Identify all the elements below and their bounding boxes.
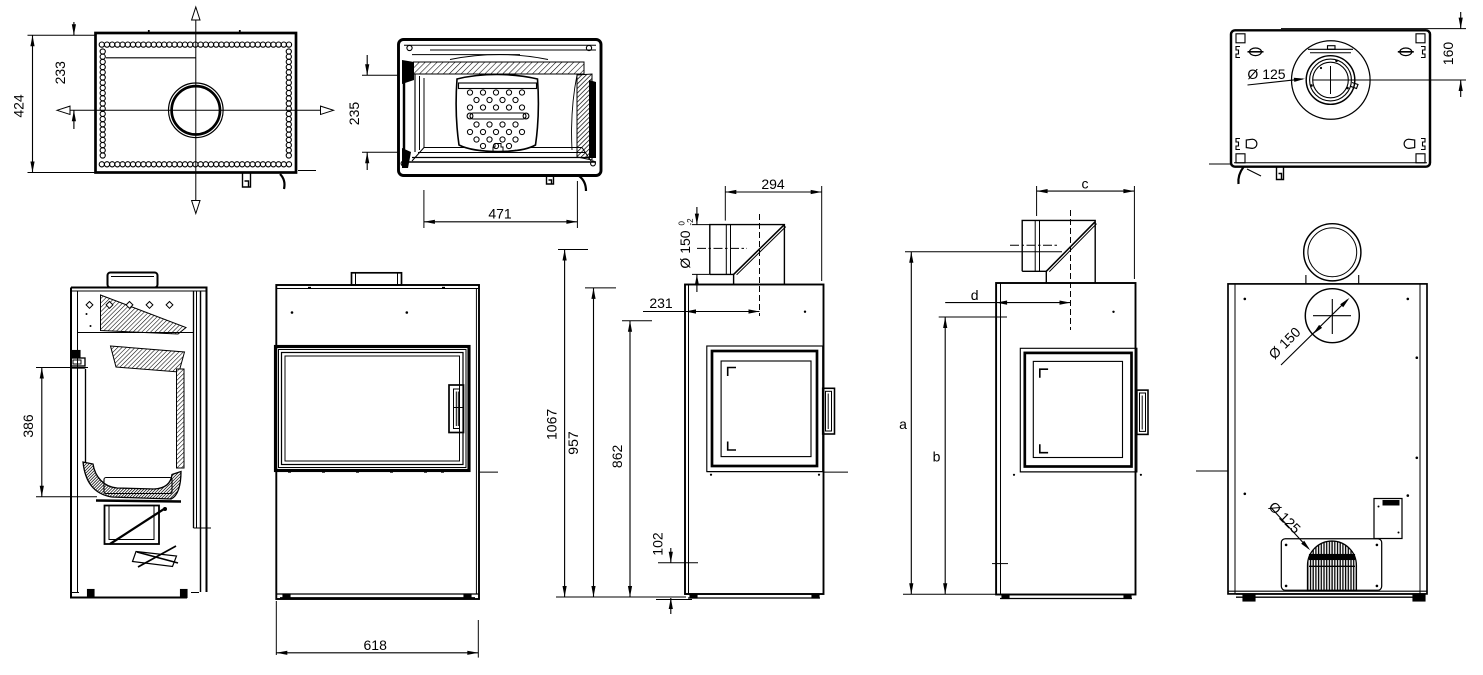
svg-text:b: b xyxy=(933,449,941,465)
svg-text:d: d xyxy=(971,287,979,303)
svg-text:957: 957 xyxy=(565,431,581,455)
svg-text:235: 235 xyxy=(346,102,362,126)
svg-text:386: 386 xyxy=(20,414,36,438)
svg-text:a: a xyxy=(899,416,907,432)
svg-text:c: c xyxy=(1082,175,1089,191)
svg-text:862: 862 xyxy=(609,445,625,469)
svg-text:231: 231 xyxy=(649,295,673,311)
svg-text:Ø 125: Ø 125 xyxy=(1247,66,1285,82)
svg-text:1067: 1067 xyxy=(544,409,560,440)
svg-text:424: 424 xyxy=(11,94,27,118)
svg-text:Ø 150: Ø 150 xyxy=(677,230,693,268)
svg-text:471: 471 xyxy=(488,205,512,221)
svg-text:-2: -2 xyxy=(686,218,695,226)
svg-text:294: 294 xyxy=(761,176,785,192)
svg-text:160: 160 xyxy=(1440,42,1456,66)
svg-text:233: 233 xyxy=(52,61,68,85)
svg-text:102: 102 xyxy=(650,532,666,556)
svg-text:618: 618 xyxy=(364,637,388,653)
